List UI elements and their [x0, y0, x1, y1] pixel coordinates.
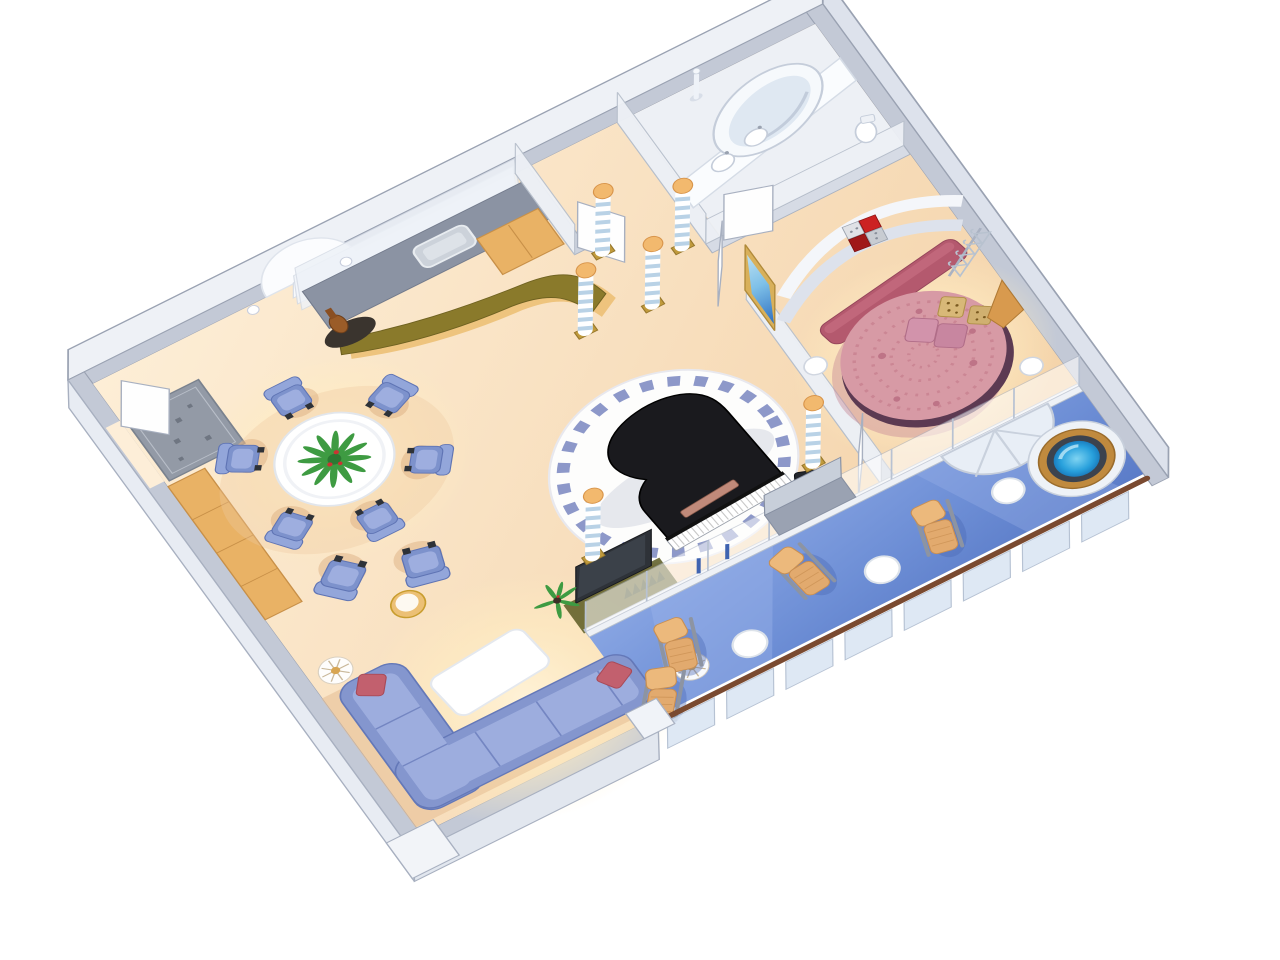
suite-isometric-group [38, 0, 1207, 890]
suite-floorplan [0, 0, 1280, 960]
leopard-pillow [937, 297, 966, 318]
red-throw-pillow [356, 674, 387, 696]
floorplan-canvas [0, 0, 1280, 960]
bed-pillow [904, 318, 939, 343]
bed-pillow [933, 323, 968, 348]
